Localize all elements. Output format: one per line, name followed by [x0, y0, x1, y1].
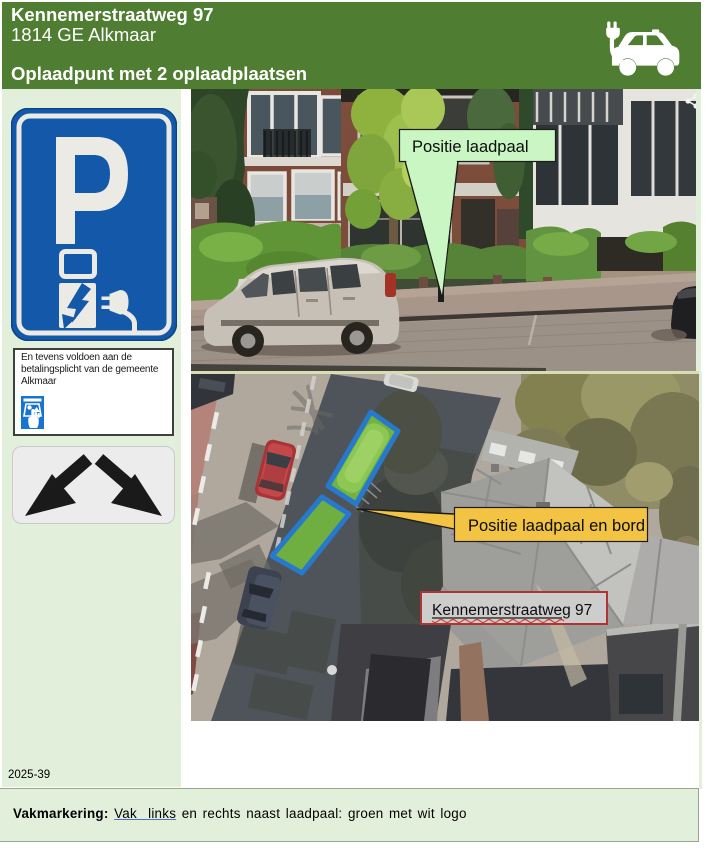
svg-text:Kennemerstraatweg 97: Kennemerstraatweg 97 [432, 602, 592, 619]
svg-text:Positie laadpaal: Positie laadpaal [412, 138, 529, 156]
svg-text:Positie laadpaal en bord: Positie laadpaal en bord [468, 517, 645, 535]
